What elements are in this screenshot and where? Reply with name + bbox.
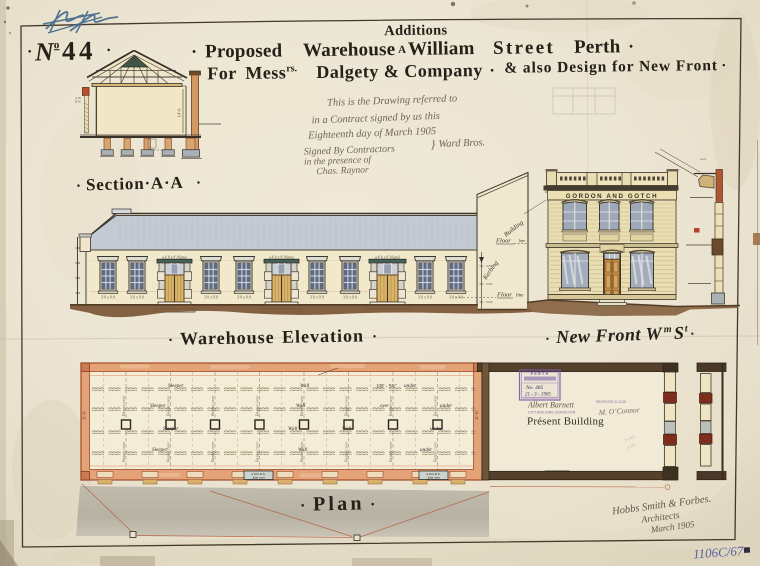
svg-text:Proposed: Proposed [205, 40, 283, 62]
svg-text:Bearer over: Bearer over [254, 395, 259, 416]
svg-text:Bearer over: Bearer over [343, 395, 348, 416]
svg-text:For: For [207, 63, 237, 83]
svg-text:line: line [519, 238, 525, 243]
svg-text:Sleeper: Sleeper [163, 426, 180, 432]
svg-text:·: · [370, 496, 376, 513]
svg-text:William: William [408, 38, 475, 60]
svg-text:108' - 9¾": 108' - 9¾" [376, 385, 397, 390]
svg-text:9.100: 9.100 [486, 301, 493, 304]
svg-text:Warehouse: Warehouse [303, 39, 395, 61]
svg-text:21 - 3 - 1905: 21 - 3 - 1905 [525, 393, 551, 398]
svg-text:Dalgety & Company: Dalgety & Company [316, 60, 483, 82]
svg-text:Wall: Wall [300, 383, 310, 389]
svg-text:Bearer over: Bearer over [121, 395, 126, 416]
svg-text:a 4'.6 x 9'.0 lintel: a 4'.6 x 9'.0 lintel [269, 255, 294, 259]
svg-text:GORDON AND GOTCH: GORDON AND GOTCH [566, 193, 658, 200]
svg-text:Wall: Wall [298, 447, 308, 453]
svg-text:·: · [372, 329, 377, 345]
svg-text:Mess: Mess [245, 62, 286, 82]
svg-text:Bearer over: Bearer over [121, 441, 126, 462]
svg-text:·: · [690, 327, 695, 342]
svg-text:Bearer over: Bearer over [343, 441, 348, 462]
svg-text:3'.0 x 9'.0: 3'.0 x 9'.0 [101, 296, 115, 300]
svg-text:3'.0 x 9'.0: 3'.0 x 9'.0 [418, 296, 432, 300]
svg-text:·: · [489, 61, 495, 80]
svg-text:}: } [430, 137, 435, 151]
svg-text:under: under [420, 447, 433, 453]
svg-text:Bearer over: Bearer over [210, 441, 215, 462]
svg-text:3'.0 x 9'.0: 3'.0 x 9'.0 [310, 296, 324, 300]
svg-text:under: under [404, 383, 417, 389]
svg-text:3'.0 x 9'.0: 3'.0 x 9'.0 [204, 296, 218, 300]
svg-text:Joist over: Joist over [252, 475, 265, 479]
svg-text:Chas. Raynor: Chas. Raynor [316, 165, 369, 177]
svg-text:Elevation: Elevation [282, 325, 364, 346]
svg-text:Bearer over: Bearer over [388, 441, 393, 462]
svg-text:Bearer over: Bearer over [210, 395, 215, 416]
svg-text:Ward Bros.: Ward Bros. [438, 137, 485, 150]
svg-text:over: over [380, 403, 390, 409]
svg-text:Wall: Wall [296, 403, 306, 409]
svg-text:Wall: Wall [342, 426, 352, 432]
svg-text:·: · [628, 36, 634, 56]
svg-text:o: o [54, 39, 60, 51]
svg-text:Sleeper: Sleeper [152, 447, 169, 453]
svg-text:Plan: Plan [313, 493, 365, 516]
svg-text:under: under [440, 403, 453, 409]
svg-text:·: · [191, 41, 197, 61]
svg-text:Warehouse: Warehouse [180, 327, 275, 349]
svg-text:·: · [106, 42, 112, 59]
svg-text:Albert Barnett: Albert Barnett [527, 401, 575, 410]
svg-text:21'-10: 21'-10 [83, 411, 87, 420]
svg-text:New Front W: New Front W [555, 323, 664, 347]
svg-text:3'.0 x 9'.0: 3'.0 x 9'.0 [343, 296, 357, 300]
svg-text:RECEIVED 21-3-05: RECEIVED 21-3-05 [596, 400, 626, 404]
svg-text:Sleeper: Sleeper [150, 403, 167, 409]
svg-text:·: · [721, 58, 726, 74]
svg-text:S: S [674, 323, 685, 343]
svg-text:Additions: Additions [384, 22, 447, 39]
svg-text:roof: roof [700, 157, 707, 161]
svg-text:R.W: R.W [75, 100, 81, 104]
svg-text:a 4'.6 x 9'.0 lintel: a 4'.6 x 9'.0 lintel [375, 255, 400, 259]
svg-text:No. 485: No. 485 [525, 384, 544, 391]
svg-text:·: · [27, 44, 33, 61]
svg-text:Joist over: Joist over [427, 475, 440, 479]
svg-text:3'.0 x 9'.0: 3'.0 x 9'.0 [237, 296, 251, 300]
svg-text:·: · [545, 332, 550, 347]
svg-text:Wall: Wall [288, 426, 298, 432]
svg-text:Bearer over: Bearer over [254, 441, 259, 462]
svg-text:21'-10: 21'-10 [475, 411, 479, 420]
svg-text:Section·A·A: Section·A·A [86, 173, 184, 195]
svg-text:Bearer over: Bearer over [432, 441, 437, 462]
svg-text:Perth: Perth [574, 36, 621, 58]
svg-text:·: · [76, 179, 81, 195]
svg-text:under: under [430, 426, 443, 432]
svg-text:line: line [516, 294, 524, 299]
svg-text:14'-6: 14'-6 [177, 108, 182, 118]
svg-text:44: 44 [62, 35, 97, 66]
svg-text:Street: Street [493, 37, 555, 59]
svg-text:PERTH: PERTH [531, 372, 550, 376]
svg-text:m: m [664, 324, 672, 335]
svg-text:Présent Building: Présent Building [527, 416, 604, 428]
svg-text:& also Design for New Front: & also Design for New Front [504, 57, 718, 77]
svg-text:CITY BUILDING SURVEYOR: CITY BUILDING SURVEYOR [528, 411, 576, 415]
svg-text:Floor: Floor [495, 238, 511, 245]
svg-text:·: · [300, 498, 306, 515]
svg-text:Bearer over: Bearer over [165, 395, 170, 416]
svg-text:9.100: 9.100 [486, 283, 493, 286]
svg-text:A: A [398, 44, 406, 56]
svg-text:·: · [168, 333, 173, 349]
svg-text:3'.0 x 9'.0: 3'.0 x 9'.0 [130, 296, 144, 300]
svg-text:Bearer over: Bearer over [432, 395, 437, 416]
svg-text:Floor: Floor [496, 292, 512, 299]
svg-text:·: · [196, 175, 201, 191]
svg-text:a 4'.6 x 9'.0 lintel: a 4'.6 x 9'.0 lintel [162, 255, 187, 259]
svg-text:rs.: rs. [286, 63, 297, 74]
svg-text:N: N [34, 37, 56, 66]
svg-text:Sleeper: Sleeper [168, 383, 185, 389]
